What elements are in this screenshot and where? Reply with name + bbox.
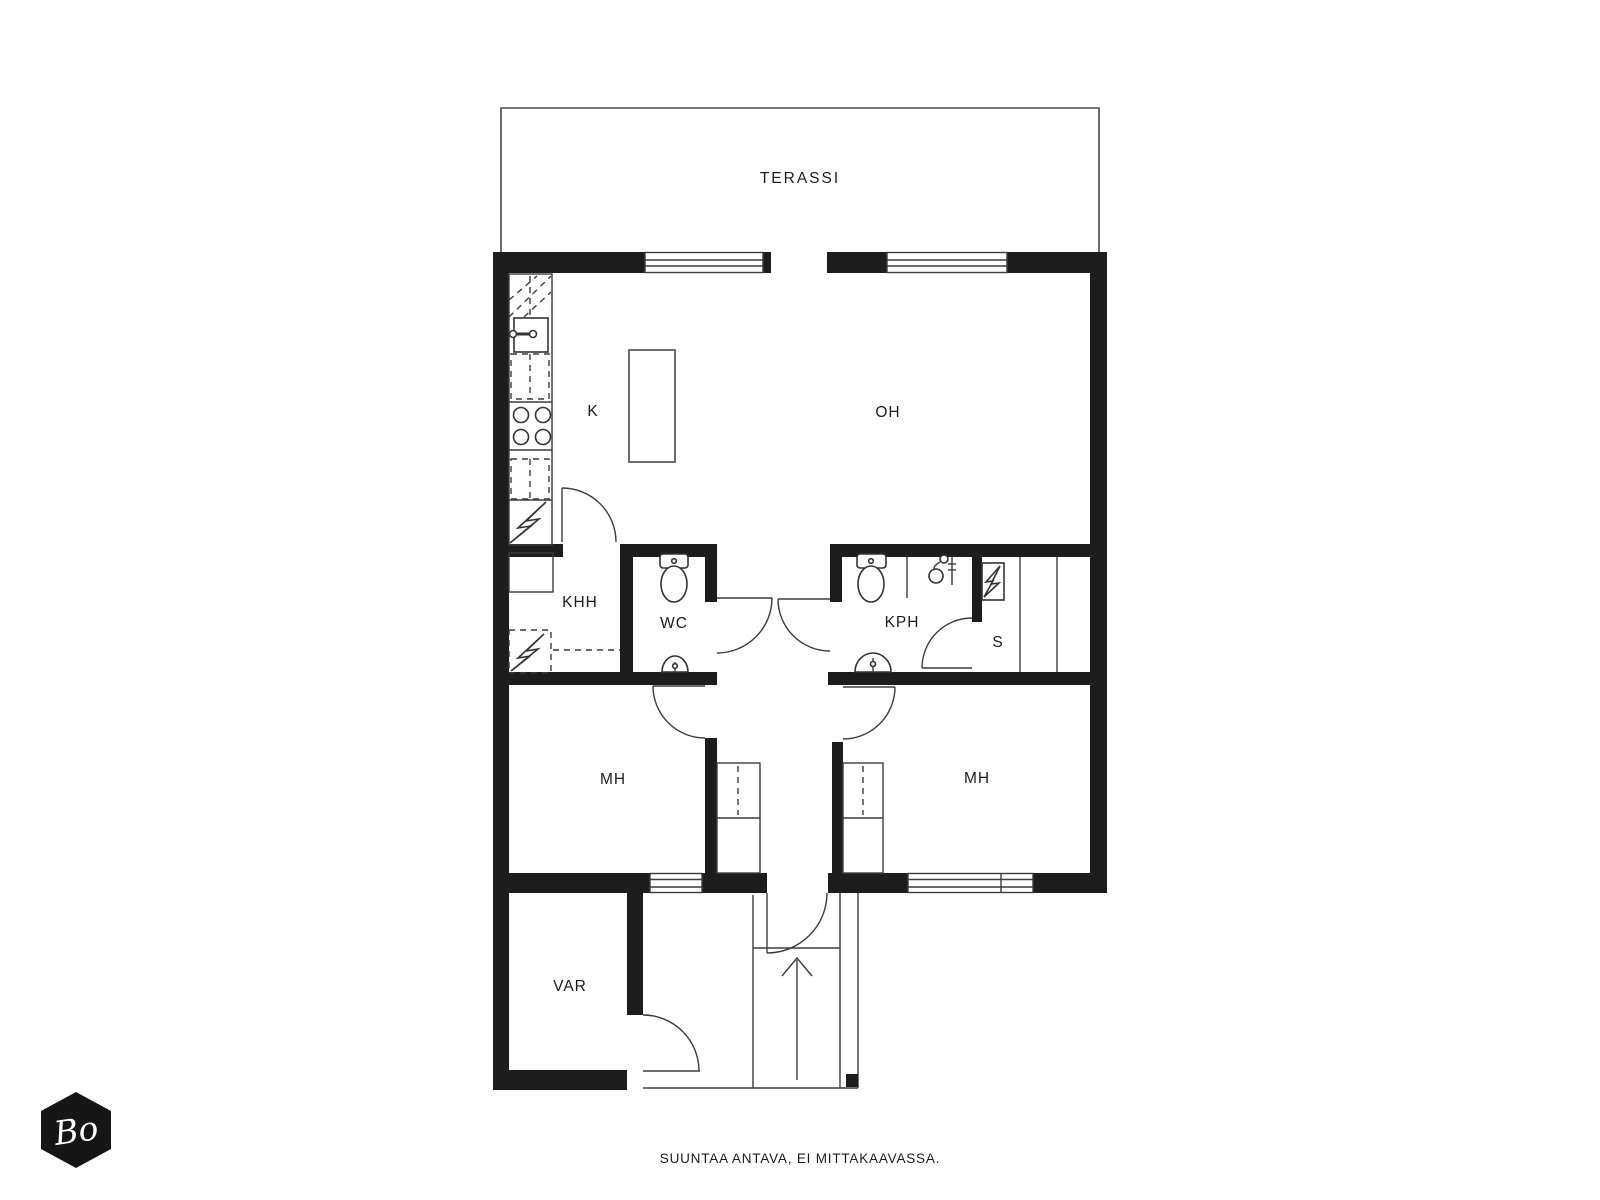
wc-fixtures [660, 554, 688, 672]
door-arc [922, 618, 972, 668]
walls [493, 252, 1107, 1090]
kitchen-island [629, 350, 675, 462]
window [887, 253, 1007, 273]
room-label-kph: KPH [885, 614, 920, 631]
electric-bolt-icon [511, 634, 544, 671]
sink-icon [855, 653, 891, 672]
door-arc [778, 599, 830, 651]
floorplan-page: TERASSI [0, 0, 1600, 1200]
toilet-icon [857, 554, 886, 602]
stairs [643, 893, 858, 1088]
wardrobe-icon [717, 763, 760, 873]
up-arrow-icon [782, 958, 812, 1080]
door-arc [843, 687, 895, 739]
logo: Bo [41, 1092, 111, 1168]
door-arc [643, 1015, 700, 1071]
room-label-mh-right: MH [964, 770, 990, 787]
room-label-k: K [587, 403, 598, 420]
room-label-khh: KHH [562, 594, 598, 611]
sauna-fixtures [982, 557, 1057, 672]
shower-icon [929, 555, 956, 585]
disclaimer-text: SUUNTAA ANTAVA, EI MITTAKAAVASSA. [660, 1151, 940, 1166]
room-label-terassi: TERASSI [760, 170, 840, 187]
kph-fixtures [855, 554, 956, 672]
toilet-icon [660, 554, 688, 602]
room-label-mh-left: MH [600, 771, 626, 788]
stove-icon [509, 402, 552, 450]
door-arc [562, 488, 616, 542]
sink-icon [510, 318, 549, 352]
wardrobes [717, 763, 883, 873]
logo-text: Bo [51, 1108, 101, 1153]
floorplan-drawing: TERASSI [0, 0, 1600, 1200]
room-labels: K OH KHH WC KPH S MH MH VAR [553, 403, 1004, 995]
door-arc [767, 893, 827, 953]
sink-icon [662, 656, 688, 672]
window [645, 253, 763, 273]
electric-bolt-icon [509, 500, 552, 543]
washing-machine [509, 553, 553, 592]
window [650, 874, 702, 893]
terrace: TERASSI [501, 108, 1099, 252]
wardrobe-icon [843, 763, 883, 873]
room-label-s: S [992, 634, 1003, 651]
door-arc [717, 598, 772, 653]
section-marker [846, 1074, 858, 1087]
khh-fixtures [509, 553, 620, 673]
room-label-var: VAR [553, 978, 587, 995]
room-label-wc: WC [660, 615, 688, 632]
room-label-oh: OH [875, 404, 900, 421]
sauna-heater-icon [982, 563, 1004, 600]
window [908, 874, 1033, 893]
door-arc [653, 686, 705, 738]
